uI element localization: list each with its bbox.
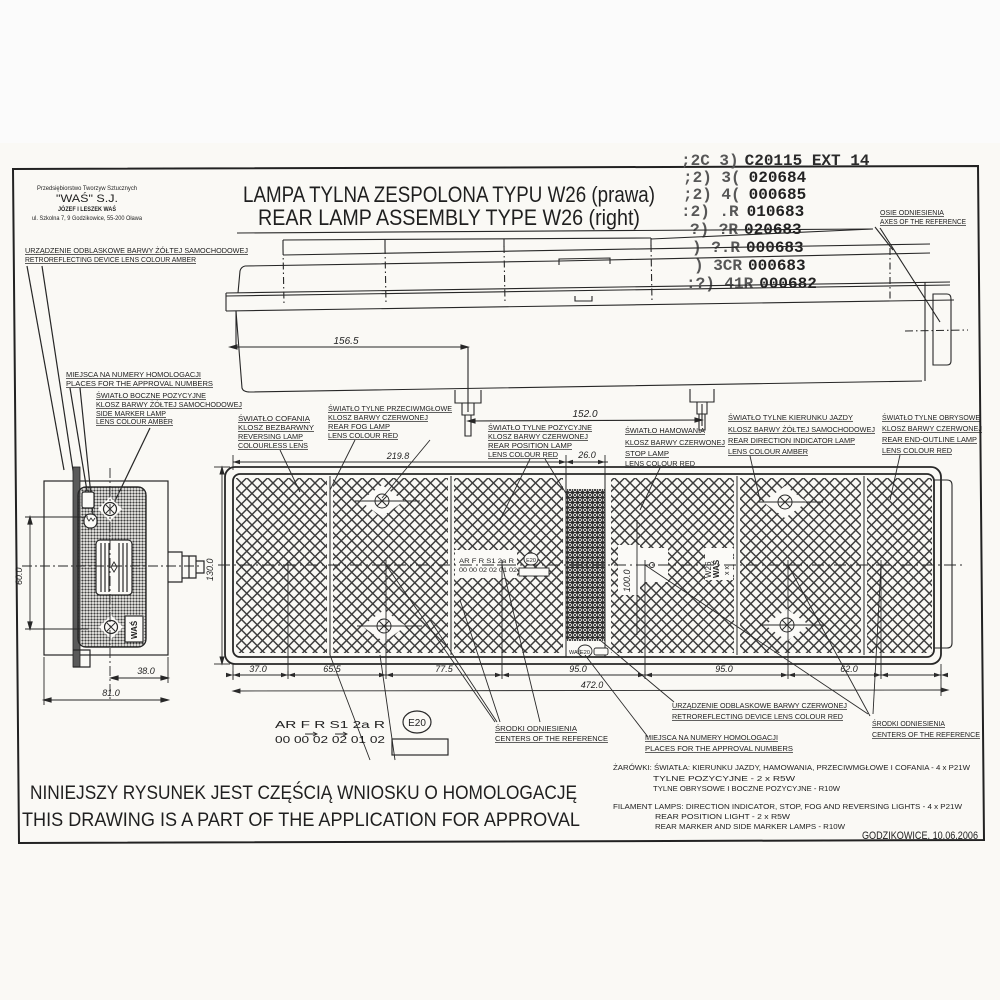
svg-text:ŚWIATŁO COFANIA: ŚWIATŁO COFANIA	[238, 414, 310, 423]
svg-text:MIEJSCA NA NUMERY HOMOLOGACJI: MIEJSCA NA NUMERY HOMOLOGACJI	[645, 735, 778, 742]
svg-text:LENS COLOUR RED: LENS COLOUR RED	[882, 448, 952, 455]
svg-text:KLOSZ BARWY ŻÓŁTEJ SAMOCHODOWE: KLOSZ BARWY ŻÓŁTEJ SAMOCHODOWEJ	[96, 400, 242, 409]
svg-text:77.5: 77.5	[435, 664, 454, 674]
svg-text:URZĄDZENIE ODBLASKOWE BARWY ŻÓ: URZĄDZENIE ODBLASKOWE BARWY ŻÓŁTEJ SAMOC…	[25, 246, 248, 255]
svg-text:Przedsiębiorstwo Tworzyw Sztuc: Przedsiębiorstwo Tworzyw Sztucznych	[37, 186, 137, 192]
svg-text:KLOSZ BARWY ŻÓŁTEJ SAMOCHODOWE: KLOSZ BARWY ŻÓŁTEJ SAMOCHODOWEJ	[728, 425, 875, 434]
svg-text:219.8: 219.8	[386, 451, 410, 461]
svg-text:AR F R S1 2a R: AR F R S1 2a R	[275, 720, 385, 731]
svg-text:130.0: 130.0	[205, 558, 215, 581]
svg-text:ŚWIATŁO TYLNE PRZECIWMGŁOWE: ŚWIATŁO TYLNE PRZECIWMGŁOWE	[328, 404, 452, 413]
svg-text:ŚWIATŁO TYLNE KIERUNKU JAZDY: ŚWIATŁO TYLNE KIERUNKU JAZDY	[728, 413, 853, 422]
svg-text:REAR FOG LAMP: REAR FOG LAMP	[328, 424, 390, 431]
svg-text:ŚWIATŁO TYLNE POZYCYJNE: ŚWIATŁO TYLNE POZYCYJNE	[488, 423, 592, 432]
svg-text:LENS COLOUR RED: LENS COLOUR RED	[488, 452, 558, 459]
svg-text:CENTERS OF THE REFERENCE: CENTERS OF THE REFERENCE	[872, 732, 980, 739]
svg-text:KLOSZ BARWY CZERWONEJ: KLOSZ BARWY CZERWONEJ	[625, 440, 725, 447]
svg-text:REAR END-OUTLINE LAMP: REAR END-OUTLINE LAMP	[882, 437, 977, 444]
svg-text:472.0: 472.0	[581, 680, 604, 690]
svg-text:PLACES FOR THE APPROVAL NUMBER: PLACES FOR THE APPROVAL NUMBERS	[66, 381, 213, 388]
svg-text:00 00 02 02 01 02: 00 00 02 02 01 02	[275, 735, 386, 746]
svg-text:URZĄDZENIE ODBLASKOWE BARWY CZ: URZĄDZENIE ODBLASKOWE BARWY CZERWONEJ	[672, 703, 847, 710]
svg-text:JÓZEF I LESZEK WAŚ: JÓZEF I LESZEK WAŚ	[58, 204, 117, 213]
svg-text:REAR POSITION LAMP: REAR POSITION LAMP	[488, 443, 572, 450]
svg-text:;2C 3)C20115 EXT 14: ;2C 3)C20115 EXT 14	[681, 152, 870, 170]
svg-text:KLOSZ BARWY CZERWONEJ: KLOSZ BARWY CZERWONEJ	[488, 434, 588, 441]
svg-text:RETROREFLECTING DEVICE LENS CO: RETROREFLECTING DEVICE LENS COLOUR RED	[672, 714, 843, 721]
svg-text:REVERSING LAMP: REVERSING LAMP	[238, 434, 303, 441]
svg-text:ŚWIATŁO HAMOWANIA: ŚWIATŁO HAMOWANIA	[625, 426, 705, 435]
svg-text:NINIEJSZY RYSUNEK JEST CZĘŚCIĄ: NINIEJSZY RYSUNEK JEST CZĘŚCIĄ WNIOSKU O…	[30, 782, 577, 804]
svg-text:LENS COLOUR AMBER: LENS COLOUR AMBER	[96, 419, 173, 426]
svg-text:AR F R S1 2a R: AR F R S1 2a R	[459, 558, 514, 565]
svg-text:THIS DRAWING IS A PART OF THE: THIS DRAWING IS A PART OF THE APPLICATIO…	[22, 810, 580, 831]
svg-text:REAR MARKER AND SIDE MARKER LA: REAR MARKER AND SIDE MARKER LAMPS - R10W	[655, 822, 846, 831]
svg-text:REAR LAMP ASSEMBLY TYPE W26 (r: REAR LAMP ASSEMBLY TYPE W26 (right)	[258, 205, 640, 230]
svg-text:KLOSZ BARWY CZERWONEJ: KLOSZ BARWY CZERWONEJ	[882, 426, 982, 433]
svg-text:TYLNE OBRYSOWE I BOCZNE POZYCY: TYLNE OBRYSOWE I BOCZNE POZYCYJNE - R10W	[653, 784, 841, 793]
svg-text:156.5: 156.5	[333, 336, 358, 347]
svg-text:PLACES FOR THE APPROVAL NUMBER: PLACES FOR THE APPROVAL NUMBERS	[645, 746, 793, 753]
svg-text:E20: E20	[408, 718, 426, 729]
svg-text:ŻARÓWKI: ŚWIATŁA: KIERUNKU JAZ: ŻARÓWKI: ŚWIATŁA: KIERUNKU JAZDY, HAMOWA…	[613, 763, 971, 772]
svg-text:65.5: 65.5	[323, 664, 342, 674]
svg-text:STOP LAMP: STOP LAMP	[625, 451, 669, 458]
svg-text:KLOSZ BARWY CZERWONEJ: KLOSZ BARWY CZERWONEJ	[328, 415, 428, 422]
svg-text:95.0: 95.0	[715, 664, 733, 674]
svg-text:152.0: 152.0	[572, 409, 597, 420]
svg-text:81.0: 81.0	[102, 688, 120, 698]
svg-text:ul. Szkolna 7, 9 Godzikowice,: ul. Szkolna 7, 9 Godzikowice, 55-200 Oła…	[32, 216, 143, 222]
svg-text:CENTERS OF THE REFERENCE: CENTERS OF THE REFERENCE	[495, 736, 608, 743]
svg-text:E20: E20	[526, 558, 536, 564]
svg-text:SIDE MARKER LAMP: SIDE MARKER LAMP	[96, 411, 166, 418]
svg-text:GODZIKOWICE, 10.06.2006: GODZIKOWICE, 10.06.2006	[862, 830, 978, 842]
svg-text:ŚWIATŁO TYLNE OBRYSOWE: ŚWIATŁO TYLNE OBRYSOWE	[882, 413, 980, 422]
svg-text:OSIE ODNIESIENIA: OSIE ODNIESIENIA	[880, 210, 944, 217]
svg-text:REAR DIRECTION INDICATOR LAMP: REAR DIRECTION INDICATOR LAMP	[728, 438, 855, 445]
svg-text:FILAMENT LAMPS: DIRECTION INDI: FILAMENT LAMPS: DIRECTION INDICATOR, STO…	[613, 802, 963, 811]
svg-text:MIEJSCA NA NUMERY HOMOLOGACJI: MIEJSCA NA NUMERY HOMOLOGACJI	[66, 372, 201, 379]
svg-text:38.0: 38.0	[137, 666, 155, 676]
svg-text:100.0: 100.0	[622, 569, 632, 592]
svg-text:KLOSZ BEZBARWNY: KLOSZ BEZBARWNY	[238, 425, 314, 432]
svg-text:00 00 02 02 01 02: 00 00 02 02 01 02	[459, 567, 517, 574]
svg-text:WAŚ: WAŚ	[712, 559, 721, 578]
svg-text:60.0: 60.0	[14, 567, 24, 585]
svg-text:ŚWIATŁO BOCZNE POZYCYJNE: ŚWIATŁO BOCZNE POZYCYJNE	[96, 391, 206, 400]
svg-text:REAR POSITION LIGHT - 2 x R5W: REAR POSITION LIGHT - 2 x R5W	[655, 812, 791, 821]
svg-text:ŚRODKI ODNIESIENIA: ŚRODKI ODNIESIENIA	[495, 724, 577, 733]
svg-text:RETROREFLECTING DEVICE LENS CO: RETROREFLECTING DEVICE LENS COLOUR AMBER	[25, 255, 196, 264]
svg-text:) 3CR000683: ) 3CR000683	[694, 257, 806, 275]
svg-text:x x: x x	[724, 566, 731, 575]
svg-text:WAŚ: WAŚ	[130, 620, 139, 639]
svg-text:AXES OF THE REFERENCE: AXES OF THE REFERENCE	[880, 219, 966, 226]
svg-text:26.0: 26.0	[577, 450, 596, 460]
svg-text:95.0: 95.0	[569, 664, 587, 674]
svg-text:W26: W26	[704, 561, 713, 578]
svg-text:COLOURLESS LENS: COLOURLESS LENS	[238, 443, 308, 450]
svg-text:LENS COLOUR RED: LENS COLOUR RED	[328, 433, 398, 440]
svg-text:ŚRODKI ODNIESIENIA: ŚRODKI ODNIESIENIA	[872, 719, 945, 728]
svg-text:LENS COLOUR AMBER: LENS COLOUR AMBER	[728, 449, 808, 456]
svg-text:LAMPA TYLNA ZESPOLONA TYPU W26: LAMPA TYLNA ZESPOLONA TYPU W26 (prawa)	[243, 182, 655, 207]
svg-text:TYLNE POZYCYJNE - 2 x R5W: TYLNE POZYCYJNE - 2 x R5W	[653, 774, 796, 783]
svg-text:"WAŚ" S.J.: "WAŚ" S.J.	[56, 192, 118, 205]
svg-text:37.0: 37.0	[249, 664, 267, 674]
